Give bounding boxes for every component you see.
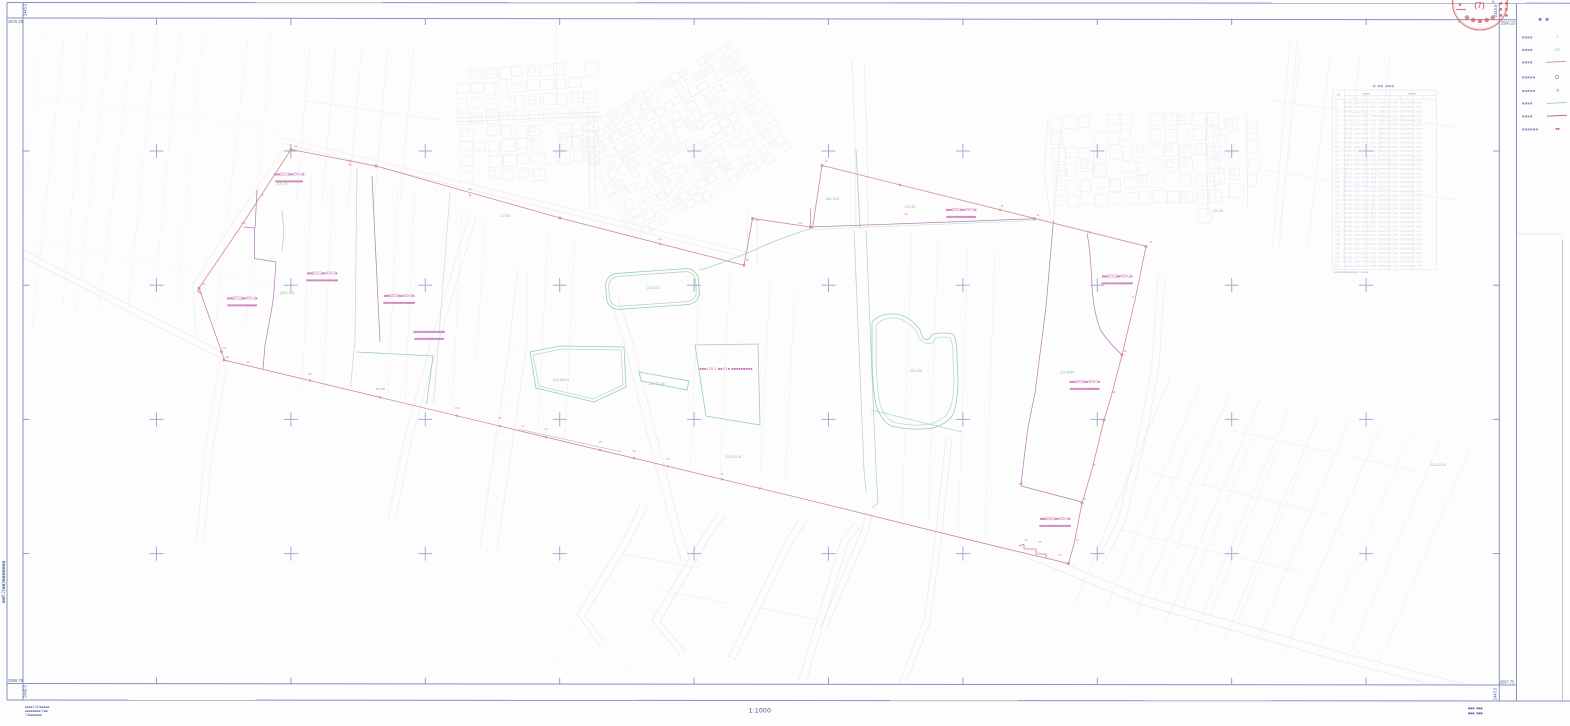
- svg-text:2445.5: 2445.5: [23, 3, 28, 16]
- svg-text:3: 3: [1557, 35, 1559, 39]
- svg-text:J6: J6: [1150, 240, 1153, 244]
- svg-text:■■■■■■■■■■■■■■■■: ■■■■■■■■■■■■■■■■: [413, 329, 446, 334]
- svg-text:Y: Y: [1423, 96, 1425, 100]
- svg-text:J34 40725.887-4377.137 254578: J34 40725.887-4377.137 2545780.366 19434…: [1334, 247, 1422, 251]
- svg-text:■■■(2021)■■4004-2■: ■■■(2021)■■4004-2■: [1102, 274, 1133, 279]
- svg-text:J36: J36: [455, 406, 460, 410]
- svg-text:J17 40738.188-4386.883 254576: J17 40738.188-4386.883 2545766.490 19434…: [1334, 171, 1422, 175]
- svg-text:■:■■■■■■■■■■■■XY■■■■: ■:■■■■■■■■■■■■XY■■■■: [1334, 270, 1369, 274]
- svg-text:X: X: [1355, 96, 1357, 100]
- svg-text:J14 40728.745-4401.543 254575: J14 40728.745-4401.543 2545750.117 19434…: [1334, 158, 1422, 162]
- svg-text:J8 40731.144-4387.767 254573: J8 40731.144-4387.767 2545734.428 194340…: [1334, 132, 1422, 136]
- svg-text:222-07-85: 222-07-85: [649, 382, 665, 386]
- svg-text:■■■(2021)■■4004-2■: ■■■(2021)■■4004-2■: [1069, 379, 1100, 384]
- svg-text:28: 28: [260, 193, 264, 197]
- svg-text:24: 24: [468, 187, 472, 191]
- svg-text:J1: J1: [295, 144, 298, 148]
- svg-text:■: ■: [1499, 13, 1502, 19]
- svg-text:34: 34: [544, 427, 548, 431]
- svg-text:■■■■■■■■■■■■■■■: ■■■■■■■■■■■■■■■: [1070, 386, 1101, 391]
- svg-text:31: 31: [1083, 497, 1087, 501]
- svg-text:2590.23: 2590.23: [1501, 21, 1517, 26]
- svg-text:J38 40732.243-4407.263 254573: J38 40732.243-4407.263 2545732.679 19434…: [1334, 264, 1422, 268]
- svg-text:J9: J9: [746, 258, 749, 262]
- svg-text:■■■■■■■■■■■■■■■■: ■■■■■■■■■■■■■■■■: [306, 278, 339, 283]
- svg-text:J18 40701.585-4370.646 254573: J18 40701.585-4370.646 2545738.239 19434…: [1334, 176, 1422, 180]
- svg-text:J29 40720.352-4378.829 254579: J29 40720.352-4378.829 2545792.546 19434…: [1334, 224, 1422, 228]
- svg-text:221-823-6: 221-823-6: [1430, 463, 1446, 467]
- svg-text:■: ■: [1458, 2, 1461, 8]
- svg-text:J12 40701.570-4392.138 254572: J12 40701.570-4392.138 2545721.175 19434…: [1334, 149, 1422, 153]
- svg-text:J30: J30: [201, 282, 206, 286]
- svg-text:■■KJ(■■)■■■■■■■: ■■KJ(■■)■■■■■■■: [1, 561, 7, 603]
- svg-text:J5: J5: [1556, 89, 1560, 93]
- svg-text:32: 32: [1075, 538, 1079, 542]
- svg-text:■■■■■■■■■■■■■■■: ■■■■■■■■■■■■■■■: [946, 214, 977, 219]
- svg-text:21: 21: [1036, 213, 1040, 217]
- svg-text:221-873: 221-873: [647, 286, 660, 290]
- svg-text:117-93: 117-93: [500, 214, 510, 218]
- svg-text:■■■(2021)■■4004-2■: ■■■(2021)■■4004-2■: [227, 296, 258, 301]
- svg-text:J22 40726.761-4415.245 254573: J22 40726.761-4415.245 2545730.288 19434…: [1334, 193, 1422, 197]
- svg-text:J16 40704.466-4414.208 254574: J16 40704.466-4414.208 2545747.905 19434…: [1334, 167, 1422, 171]
- svg-text:22: 22: [904, 212, 908, 216]
- svg-text:■■■■: ■■■■: [1522, 47, 1533, 52]
- svg-text:J25 40704.356-4362.302 254578: J25 40704.356-4362.302 2545784.598 19434…: [1334, 207, 1422, 211]
- svg-text:2597.75: 2597.75: [1500, 679, 1516, 684]
- svg-text:■■■■■■■■■■■■■■■■: ■■■■■■■■■■■■■■■■: [383, 300, 416, 305]
- svg-text:J29: J29: [241, 221, 246, 225]
- svg-text:■■■■■■■■■■■■■■■■: ■■■■■■■■■■■■■■■■: [1039, 523, 1072, 528]
- svg-text:X: X: [1399, 96, 1401, 100]
- svg-text:33: 33: [1058, 553, 1062, 557]
- svg-text:J19 40734.402-4368.405 254579: J19 40734.402-4368.405 2545796.914 19434…: [1334, 180, 1422, 184]
- svg-text:■■■■■■■■■■■■■■: ■■■■■■■■■■■■■■: [275, 179, 304, 184]
- svg-text:■■■(2021)■■4004-2■: ■■■(2021)■■4004-2■: [384, 293, 415, 298]
- svg-text:222-8644: 222-8644: [1060, 371, 1074, 375]
- svg-text:J23 40716.298-4364.285 254579: J23 40716.298-4364.285 2545795.918 19434…: [1334, 198, 1422, 202]
- svg-text:Y: Y: [1377, 96, 1379, 100]
- svg-text:1:1000: 1:1000: [749, 708, 772, 715]
- svg-text:(221)866-6: (221)866-6: [553, 378, 570, 382]
- svg-text:2445.5: 2445.5: [1493, 687, 1498, 700]
- svg-text:J33 40704.119-4414.746 254571: J33 40704.119-4414.746 2545713.932 19434…: [1334, 242, 1422, 246]
- svg-text:J15 40707.647-4350.756 254578: J15 40707.647-4350.756 2545789.164 19434…: [1334, 163, 1422, 167]
- svg-text:J31: J31: [222, 346, 227, 350]
- svg-text:■■■■■■: ■■■■■■: [1522, 127, 1539, 132]
- svg-text:J21 40725.650-4420.187 254574: J21 40725.650-4420.187 2545749.315 19434…: [1334, 189, 1422, 193]
- svg-text:J1 40731.908-4420.466 254571: J1 40731.908-4420.466 2545719.902 194340…: [1334, 101, 1422, 105]
- svg-text:J5: J5: [1001, 204, 1004, 208]
- svg-text:■■■: ■■■: ■■■: ■■■: [1468, 707, 1483, 711]
- svg-text:221: 221: [1555, 48, 1561, 52]
- svg-text:J37 40732.110-4380.968 254578: J37 40732.110-4380.968 2545788.800 19434…: [1334, 260, 1422, 264]
- svg-text:J13 40716.671-4359.688 254573: J13 40716.671-4359.688 2545739.364 19434…: [1334, 154, 1422, 158]
- svg-text:■■■(2021)■■4004-2■: ■■■(2021)■■4004-2■: [274, 172, 305, 177]
- svg-text:J6 40715.140-4391.490 254572: J6 40715.140-4391.490 2545724.495 194340…: [1334, 123, 1422, 127]
- svg-text:J34 J35: J34 J35: [375, 387, 385, 391]
- svg-text:221-958: 221-958: [910, 369, 923, 373]
- svg-text:2569.78: 2569.78: [8, 678, 24, 683]
- svg-text:■■■■: ■■■■: [1408, 91, 1415, 95]
- svg-text:■ ■■ ■■■: ■ ■■ ■■■: [1373, 84, 1395, 89]
- svg-text:■■■: ■■■: ■■■: ■■■: [1468, 712, 1483, 716]
- svg-text:122-85: 122-85: [1213, 209, 1224, 213]
- svg-text:(7): (7): [1474, 0, 1485, 10]
- svg-text:J36 40718.237-4409.613 254577: J36 40718.237-4409.613 2545775.192 19434…: [1334, 255, 1422, 259]
- svg-text:■■: ■■: [1337, 92, 1341, 96]
- svg-text:31: 31: [720, 472, 724, 476]
- svg-text:■■■■: ■■■■: [1363, 91, 1370, 95]
- svg-text:25: 25: [1038, 540, 1042, 544]
- svg-text:J7: J7: [1132, 295, 1135, 299]
- svg-text:J35 40730.769-4369.474 254576: J35 40730.769-4369.474 2545760.328 19434…: [1334, 251, 1422, 255]
- svg-text:20■■■■■■■: 20■■■■■■■: [25, 713, 42, 717]
- svg-text:30: 30: [1092, 463, 1096, 467]
- svg-text:J4 40721.469-4387.323 254578: J4 40721.469-4387.323 2545789.643 194340…: [1334, 114, 1422, 118]
- svg-text:■■■120-3 ■■XX■ ■■■■■■■■■: ■■■120-3 ■■XX■ ■■■■■■■■■: [699, 367, 752, 371]
- svg-text:187-90: 187-90: [905, 205, 916, 209]
- svg-text:23: 23: [658, 237, 662, 241]
- svg-text:■■■■: ■■■■: [1522, 60, 1533, 65]
- svg-text:32: 32: [666, 457, 670, 461]
- svg-text:38: 38: [308, 372, 312, 376]
- svg-text:J32: J32: [225, 355, 230, 359]
- svg-text:J10 40740.892-4377.985 254579: J10 40740.892-4377.985 2545797.534 19434…: [1334, 140, 1422, 144]
- svg-text:J24 40703.971-4420.572 254579: J24 40703.971-4420.572 2545792.662 19434…: [1334, 202, 1422, 206]
- svg-text:28: 28: [598, 440, 602, 444]
- svg-text:186-78-8: 186-78-8: [825, 197, 839, 201]
- svg-text:J11 40734.948-4405.762 254571: J11 40734.948-4405.762 2545719.864 19434…: [1334, 145, 1422, 149]
- svg-text:■■■(2021)■■4004-2■: ■■■(2021)■■4004-2■: [946, 207, 977, 212]
- svg-text:■■: ■■: [1555, 127, 1559, 131]
- svg-text:J31 40719.598-4420.211 254573: J31 40719.598-4420.211 2545732.761 19434…: [1334, 233, 1422, 237]
- svg-text:■■■(2021)■■4004-2■: ■■■(2021)■■4004-2■: [1040, 516, 1071, 521]
- svg-text:(2827-84): (2827-84): [280, 291, 295, 295]
- svg-text:■: ■: [1478, 17, 1483, 26]
- svg-text:26: 26: [1024, 538, 1028, 542]
- svg-text:J20 40700.666-4368.226 254571: J20 40700.666-4368.226 2545715.105 19434…: [1334, 185, 1422, 189]
- svg-text:■: ■: [1505, 13, 1508, 19]
- svg-text:J9 40706.271-4418.646 254571: J9 40706.271-4418.646 2545710.741 194340…: [1334, 136, 1422, 140]
- svg-text:J3 40734.513-4361.457 254573: J3 40734.513-4361.457 2545738.318 194340…: [1334, 109, 1422, 113]
- svg-text:■■■■■■■■■■■■■■■: ■■■■■■■■■■■■■■■: [414, 336, 445, 341]
- svg-text:J11: J11: [798, 221, 803, 225]
- svg-text:■■■■■: ■■■■■: [1522, 88, 1536, 93]
- svg-text:■■■■: ■■■■: [1522, 101, 1533, 106]
- svg-text:■■■■: ■■■■: [1522, 114, 1533, 119]
- svg-text:J26 40708.787-4380.202 254574: J26 40708.787-4380.202 2545746.734 19434…: [1334, 211, 1422, 215]
- svg-text:J32 40717.979-4367.651 254573: J32 40717.979-4367.651 2545735.369 19434…: [1334, 238, 1422, 242]
- svg-text:■■■■■■■■■■■■■■■: ■■■■■■■■■■■■■■■: [227, 303, 258, 308]
- svg-text:35: 35: [498, 416, 502, 420]
- svg-text:222-821-8: 222-821-8: [725, 455, 741, 459]
- svg-text:J8: J8: [1124, 349, 1127, 353]
- svg-text:J7 40718.125-4416.941 254575: J7 40718.125-4416.941 2545757.626 194340…: [1334, 127, 1422, 131]
- svg-text:■ ■: ■ ■: [1538, 17, 1550, 23]
- svg-text:J4: J4: [825, 159, 828, 163]
- svg-text:39: 39: [246, 360, 250, 364]
- svg-text:2445.5: 2445.5: [23, 685, 28, 698]
- svg-text:■■■■■: ■■■■■: [1522, 74, 1536, 79]
- svg-text:J30 40723.237-4392.998 254577: J30 40723.237-4392.998 2545771.573 19434…: [1334, 229, 1422, 233]
- svg-text:27: 27: [521, 424, 525, 428]
- svg-text:J2 40714.288-4416.169 254577: J2 40714.288-4416.169 2545774.263 194340…: [1334, 105, 1422, 109]
- svg-text:J10: J10: [755, 218, 760, 222]
- svg-text:33: 33: [632, 449, 636, 453]
- svg-text:2570.28: 2570.28: [8, 19, 24, 24]
- svg-text:J27 40720.597-4407.436 254578: J27 40720.597-4407.436 2545788.775 19434…: [1334, 216, 1422, 220]
- svg-text:25: 25: [348, 159, 352, 163]
- svg-text:J5 40700.217-4394.556 254574: J5 40700.217-4394.556 2545740.757 194340…: [1334, 118, 1422, 122]
- svg-text:■■■■■■■■■■■■■■■■: ■■■■■■■■■■■■■■■■: [1101, 281, 1134, 286]
- svg-text:29: 29: [1112, 390, 1116, 394]
- svg-text:J28 40737.256-4396.927 254575: J28 40737.256-4396.927 2545750.538 19434…: [1334, 220, 1422, 224]
- svg-text:■■■(2021)■■4004-2■: ■■■(2021)■■4004-2■: [307, 271, 338, 276]
- svg-text:■■■■: ■■■■: [1522, 35, 1533, 40]
